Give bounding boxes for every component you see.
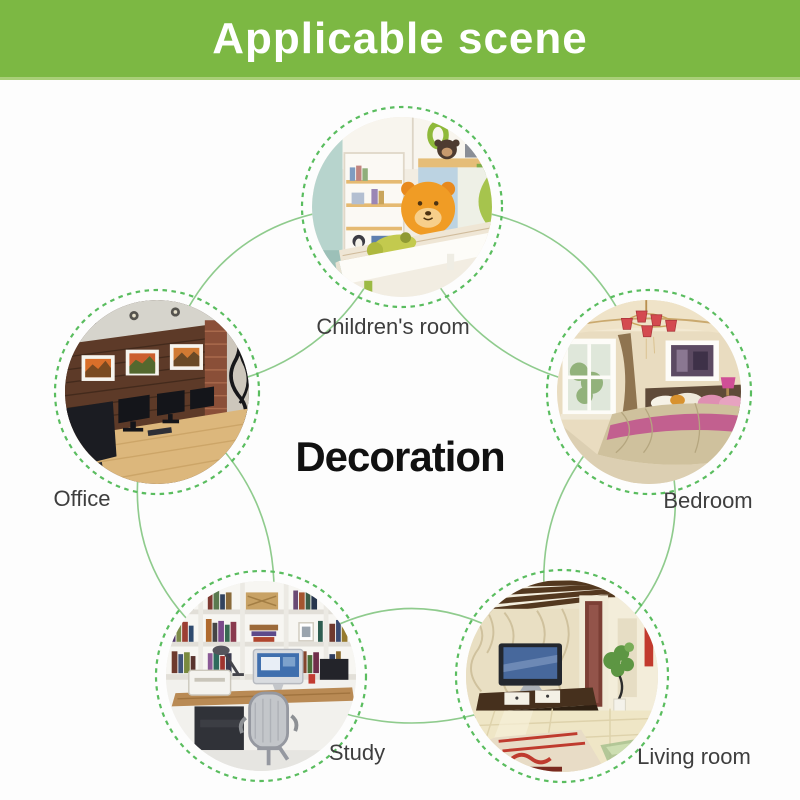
living-room-photo — [466, 580, 658, 772]
children-room-photo — [312, 117, 492, 297]
study-photo — [166, 581, 356, 771]
children-room-label: Children's room — [316, 315, 469, 339]
study-label: Study — [329, 741, 385, 765]
office-label: Office — [53, 487, 110, 511]
office-photo — [65, 300, 249, 484]
applicable-scene-infographic: Applicable scene — [0, 0, 800, 800]
bedroom-photo — [557, 300, 741, 484]
bedroom-label: Bedroom — [663, 489, 752, 513]
center-title: Decoration — [295, 433, 504, 481]
living-room-label: Living room — [637, 745, 751, 769]
